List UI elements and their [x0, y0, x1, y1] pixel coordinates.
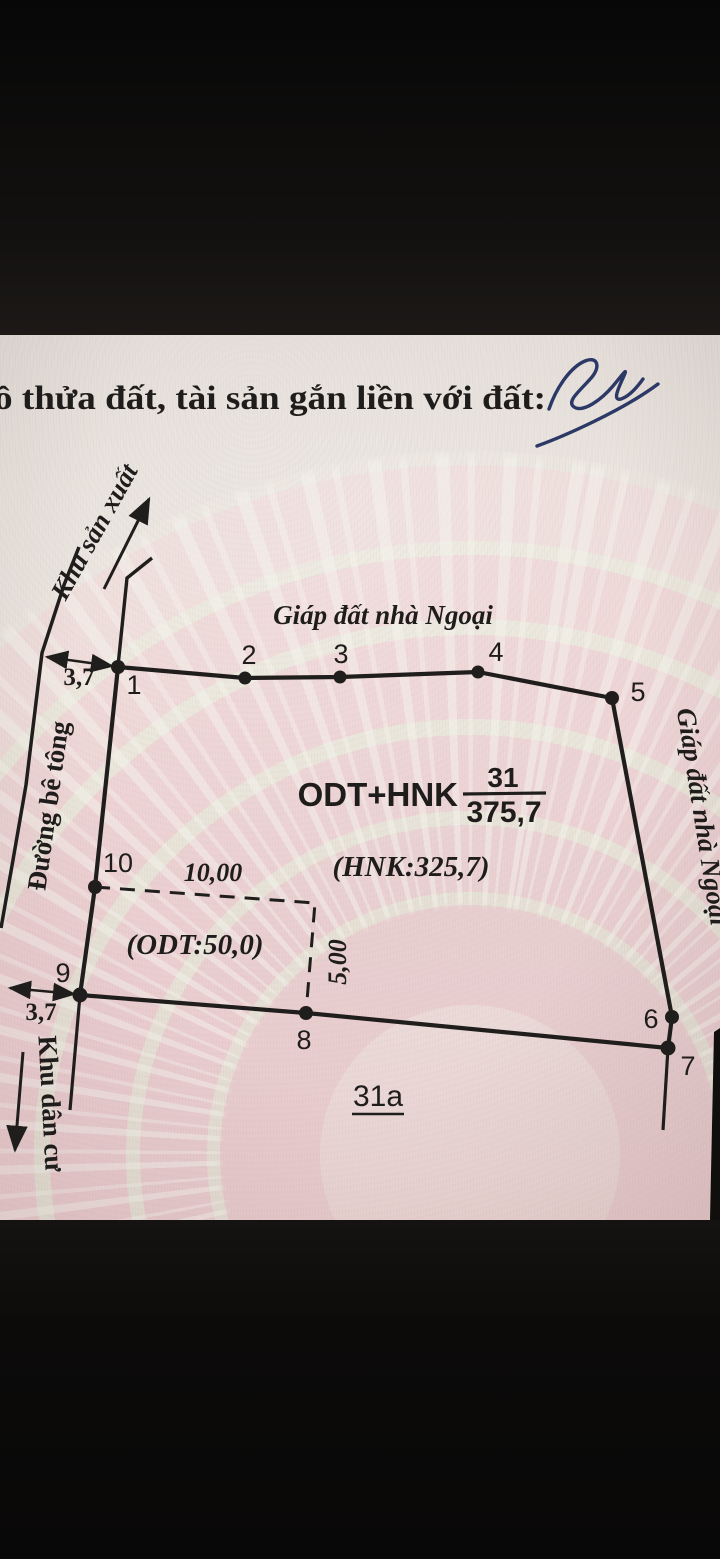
vertex-dot-10: [88, 880, 102, 894]
boundary-stub-below-v9: [70, 995, 80, 1110]
neighbor-right-label: Giáp đất nhà Ngoại: [671, 706, 720, 928]
photo-edge-shadow: [710, 1028, 720, 1220]
dim-odt-width: 10,00: [184, 858, 243, 887]
vertex-label-8: 8: [296, 1025, 311, 1055]
production-zone-label: Khu sản xuất: [44, 457, 144, 605]
neighbor-top-label: Giáp đất nhà Ngoại: [273, 600, 493, 630]
vertex-dot-5: [605, 691, 619, 705]
boundary-stub-below-v7: [663, 1048, 668, 1130]
vertex-label-7: 7: [680, 1051, 695, 1081]
land-use-code: ODT+HNK: [298, 776, 459, 813]
parcel-diagram: ồ thửa đất, tài sản gắn liền với đất:: [0, 0, 720, 1559]
boundary-stub-above-v1: [118, 558, 152, 666]
vertex-dot-7: [661, 1041, 676, 1056]
vertex-dot-1: [111, 660, 125, 674]
vertex-label-2: 2: [241, 640, 256, 670]
vertex-label-3: 3: [333, 639, 348, 669]
residential-zone-arrow: [15, 1052, 23, 1150]
residential-zone-label: Khu dân cư: [32, 1035, 69, 1173]
vertex-label-10: 10: [103, 848, 133, 878]
vertex-dot-4: [472, 666, 485, 679]
dim-bottom-offset: 3,7: [25, 999, 56, 1026]
parcel-label-group: ODT+HNK 31 375,7: [298, 762, 546, 829]
page-title: ồ thửa đất, tài sản gắn liền với đất:: [0, 380, 546, 417]
vertex-label-4: 4: [488, 637, 503, 667]
vertex-dot-6: [665, 1010, 679, 1024]
vertex-dot-9: [73, 988, 88, 1003]
screenshot-root: ồ thửa đất, tài sản gắn liền với đất:: [0, 0, 720, 1559]
dim-top-offset: 3,7: [63, 664, 94, 691]
odt-area-note: (ODT:50,0): [126, 929, 263, 961]
dim-arrow-bottom-3-7: [10, 988, 74, 994]
vertex-label-6: 6: [643, 1004, 658, 1034]
hnk-area-note: (HNK:325,7): [332, 851, 489, 883]
vertex-dot-3: [334, 671, 347, 684]
signature-scribble: [537, 360, 658, 446]
fraction-bar: [463, 793, 546, 794]
vertex-dot-2: [239, 672, 252, 685]
vertex-label-1: 1: [126, 670, 141, 700]
parcel-number: 31: [487, 762, 518, 793]
vertex-label-5: 5: [630, 677, 645, 707]
vertex-label-9: 9: [55, 958, 70, 988]
dim-odt-depth: 5,00: [323, 939, 352, 985]
adjacent-parcel-label: 31a: [353, 1080, 403, 1113]
vertex-dot-8: [299, 1006, 313, 1020]
parcel-area: 375,7: [466, 796, 541, 829]
